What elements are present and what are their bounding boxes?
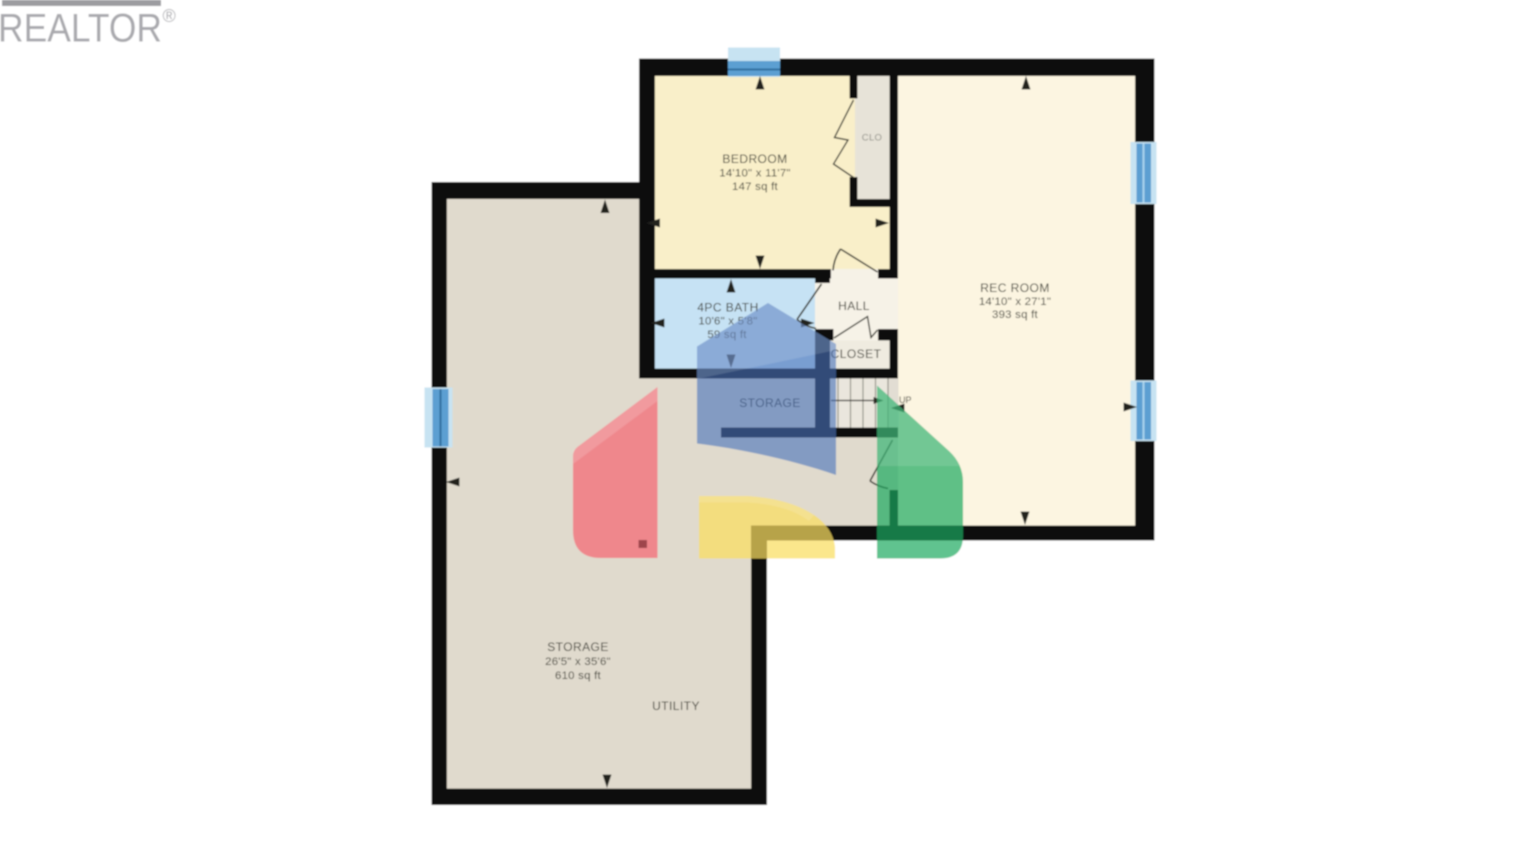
svg-text:CLO: CLO [862,133,882,144]
svg-text:26'5" x 35'6": 26'5" x 35'6" [545,656,611,668]
svg-text:393 sq ft: 393 sq ft [992,309,1039,321]
svg-text:UTILITY: UTILITY [652,699,700,713]
svg-text:14'10" x 27'1": 14'10" x 27'1" [979,296,1051,308]
svg-text:HALL: HALL [838,299,870,313]
svg-text:UP: UP [899,395,912,405]
svg-text:4PC BATH: 4PC BATH [697,301,758,315]
svg-text:14'10" x 11'7": 14'10" x 11'7" [719,168,790,180]
svg-text:CLOSET: CLOSET [831,347,882,361]
svg-text:STORAGE: STORAGE [547,640,609,654]
svg-text:®: ® [163,6,176,26]
svg-text:REC ROOM: REC ROOM [980,281,1050,295]
svg-text:147 sq ft: 147 sq ft [732,181,779,193]
svg-text:REALTOR: REALTOR [0,7,162,51]
svg-text:610 sq ft: 610 sq ft [555,670,602,682]
svg-text:BEDROOM: BEDROOM [722,152,787,166]
